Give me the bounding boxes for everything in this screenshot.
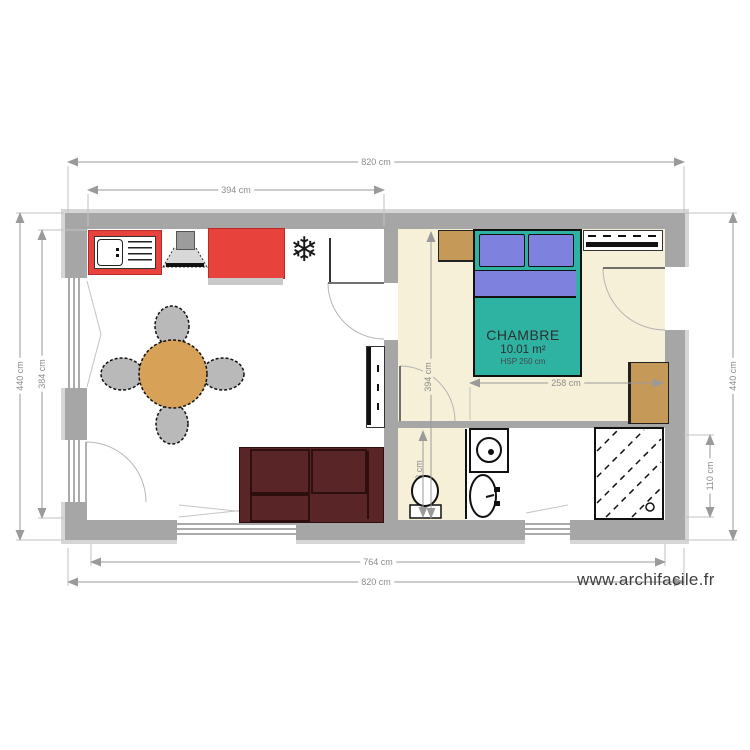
window-living-bottom[interactable] — [177, 520, 296, 544]
interior-door-opening — [384, 283, 398, 340]
sofa-cushion-left — [250, 449, 310, 494]
dim-left-inner: 384 cm — [37, 356, 47, 392]
dim-bedroom-width: 258 cm — [548, 378, 584, 388]
kitchen-cooktop-unit[interactable] — [208, 228, 285, 279]
sofa[interactable] — [240, 448, 383, 522]
hood-duct[interactable] — [176, 231, 195, 250]
radiator-bedroom[interactable] — [583, 230, 663, 251]
dresser[interactable] — [628, 362, 669, 424]
sofa-chaise — [250, 494, 310, 522]
drainer-lines — [128, 241, 152, 264]
dim-top-outer: 820 cm — [358, 157, 394, 167]
bedroom-label: CHAMBRE 10.01 m² HSP 250 cm — [423, 327, 623, 366]
freezer-icon[interactable]: ❄ — [290, 233, 319, 267]
kitchen-sink-unit[interactable] — [88, 230, 162, 275]
dim-bottom-inner: 764 cm — [360, 557, 396, 567]
floor-bathroom — [466, 428, 665, 520]
window-bathroom-bottom[interactable] — [525, 520, 570, 544]
bedroom-ceiling-height: HSP 250 cm — [423, 357, 623, 366]
dim-left-outer: 440 cm — [15, 358, 25, 394]
dim-wc-height: 123 cm — [414, 457, 424, 493]
dim-top-inner: 394 cm — [218, 185, 254, 195]
nightstand[interactable] — [438, 230, 474, 262]
radiator-living-dash1 — [377, 365, 379, 372]
archifacile-watermark: www.archifacile.fr — [577, 570, 715, 590]
entry-door-opening[interactable] — [61, 440, 87, 502]
dim-bedroom-height: 394 cm — [423, 359, 433, 395]
bedroom-area: 10.01 m² — [423, 344, 623, 356]
sofa-armrest-seam — [367, 451, 369, 519]
radiator-bedroom-dashes — [588, 235, 658, 237]
dim-right-outer: 440 cm — [728, 358, 738, 394]
dim-bottom-outer: 820 cm — [358, 577, 394, 587]
bedroom-door-opening-right[interactable] — [665, 267, 689, 330]
bed-pillow-left — [479, 234, 525, 267]
radiator-living-dash3 — [377, 403, 379, 410]
floor-wc — [398, 428, 466, 520]
dim-right-inner: 110 cm — [705, 459, 715, 494]
bedroom-name: CHAMBRE — [423, 327, 623, 343]
interior-wall-bedroom-bath-left — [455, 421, 537, 428]
floor-plan-canvas: ❄ CHAMBRE 10.01 m² HSP 250 cm 123 cm — [0, 0, 750, 750]
interior-wall-vertical — [384, 229, 398, 520]
sink-inner-panel — [94, 236, 156, 269]
bed-sheet-band — [475, 270, 576, 298]
radiator-living[interactable] — [366, 346, 385, 428]
sink-drain-dots2 — [116, 254, 119, 257]
window-left[interactable] — [61, 278, 87, 388]
counter-shadow — [208, 278, 283, 285]
sink-drain-dots — [116, 248, 119, 251]
bed-pillow-right — [528, 234, 574, 267]
radiator-bedroom-bar — [586, 242, 658, 247]
sink-basin — [97, 239, 123, 266]
radiator-living-dash2 — [377, 384, 379, 391]
sofa-cushion-right — [311, 449, 367, 494]
radiator-living-bar — [367, 347, 371, 425]
